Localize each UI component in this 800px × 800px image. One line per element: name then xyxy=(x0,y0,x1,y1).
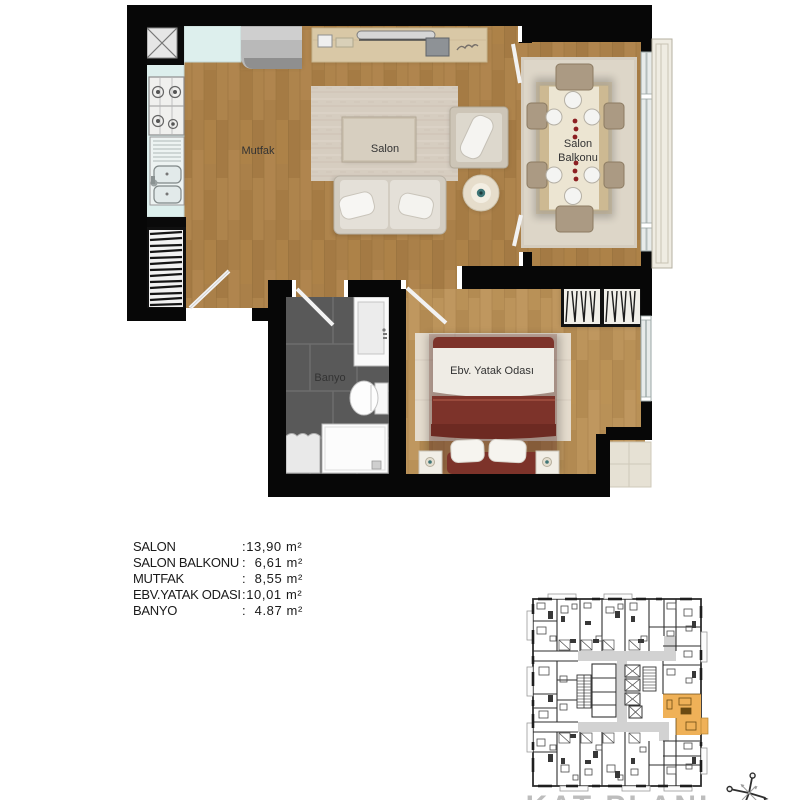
svg-text:Salon: Salon xyxy=(371,143,399,155)
svg-text:Mutfak: Mutfak xyxy=(241,145,275,157)
svg-text:Salon: Salon xyxy=(564,138,592,150)
svg-text:KAT PLANI: KAT PLANI xyxy=(526,790,711,800)
svg-text:Banyo: Banyo xyxy=(314,372,345,384)
svg-text:Ebv. Yatak Odası: Ebv. Yatak Odası xyxy=(450,365,534,377)
svg-text:Balkonu: Balkonu xyxy=(558,152,598,164)
